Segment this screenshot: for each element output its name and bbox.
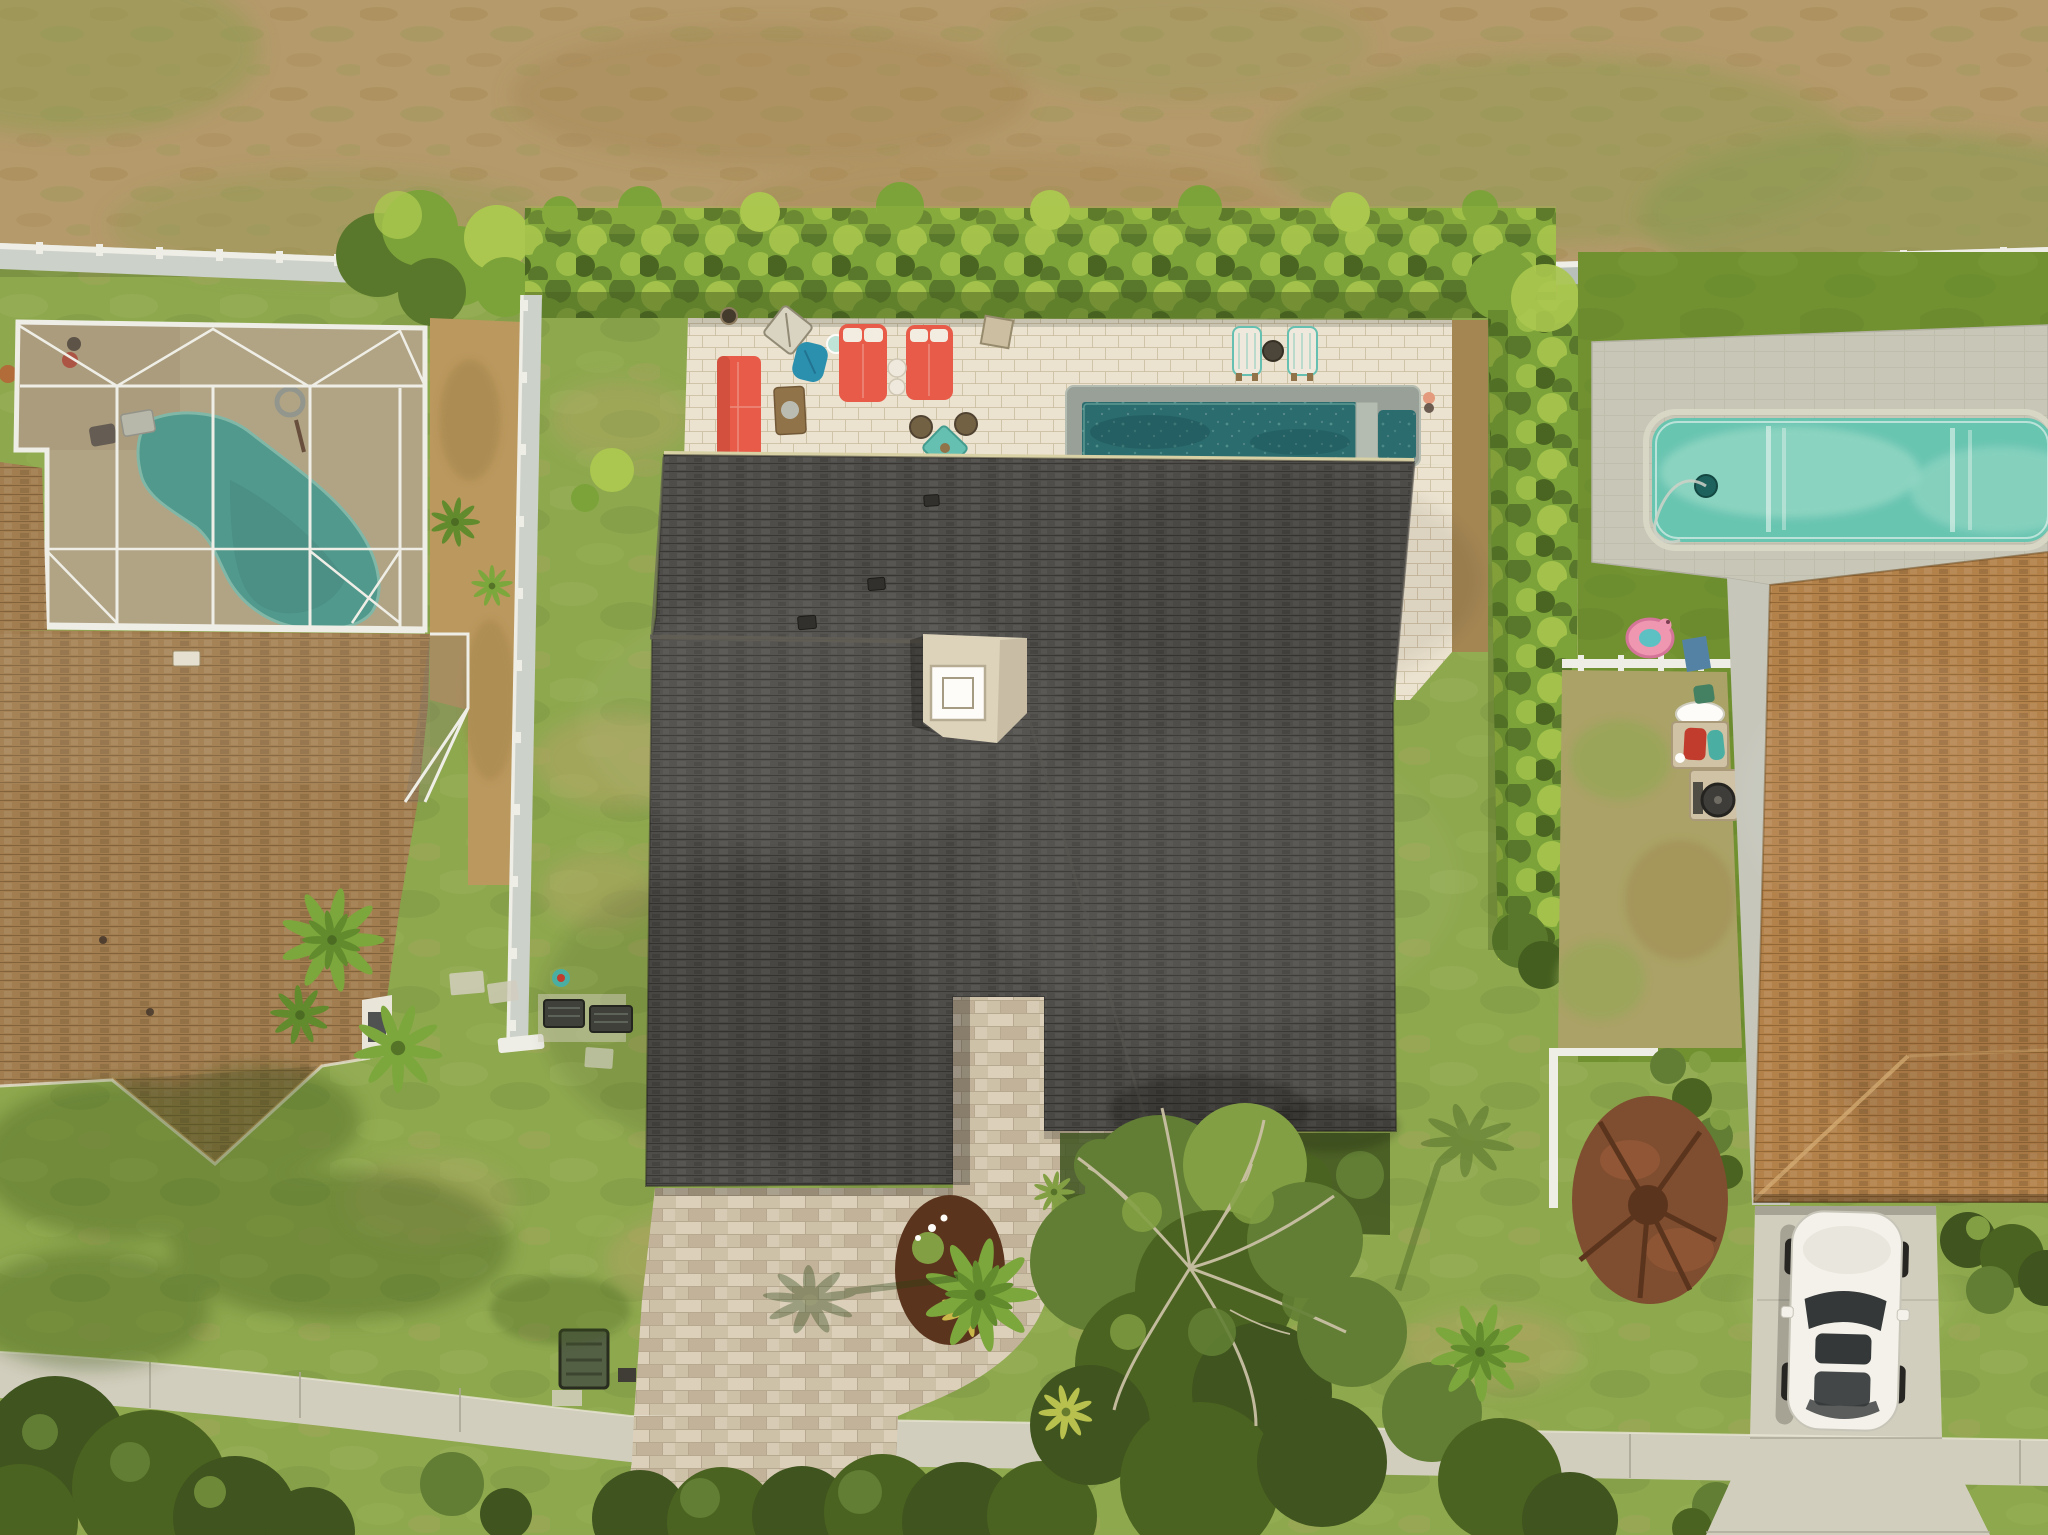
photo-tint-overlay bbox=[0, 0, 2048, 1535]
aerial-photo: Aerial drone photo of three suburban hom… bbox=[0, 0, 2048, 1535]
